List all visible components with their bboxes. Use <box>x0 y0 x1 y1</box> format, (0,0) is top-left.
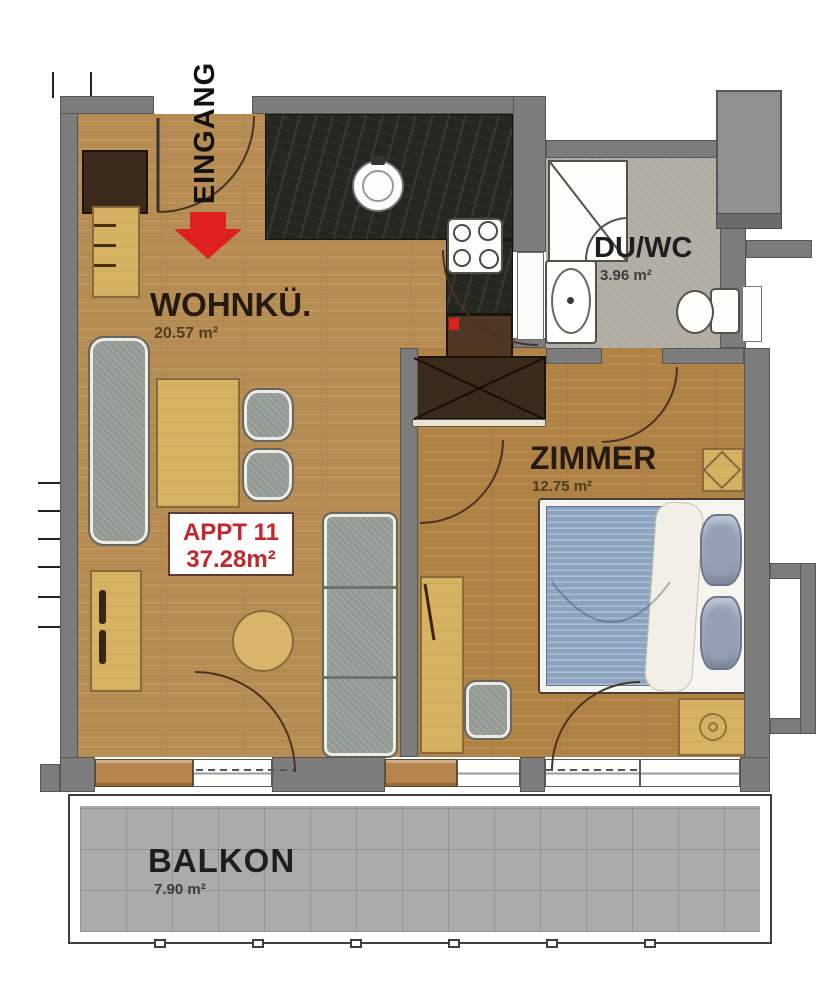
site-tick <box>90 72 92 98</box>
site-tick <box>38 538 62 540</box>
pillar-right <box>800 563 816 734</box>
chair <box>242 388 294 442</box>
wall-bath-bottom-left <box>546 348 602 364</box>
sink-drain-icon <box>567 297 574 304</box>
sideboard <box>90 570 142 692</box>
site-tick <box>38 510 62 512</box>
sideboard-handle <box>99 590 106 624</box>
room-area-zimmer: 12.75 m² <box>532 479 592 494</box>
room-area-duwc: 3.96 m² <box>600 268 652 283</box>
wall-top-main <box>252 96 514 114</box>
window-small <box>457 759 520 787</box>
wall-bottom-3 <box>520 757 545 792</box>
desk-chair <box>464 680 512 740</box>
pillow <box>700 596 742 670</box>
window-living-left <box>95 759 193 787</box>
wall-top-left <box>60 96 154 114</box>
wall-left <box>60 96 78 790</box>
wardrobe <box>412 356 546 420</box>
room-label-balkon: BALKON <box>148 844 295 877</box>
entrance-arrow-icon <box>190 212 226 230</box>
chair <box>242 448 294 502</box>
wall-bedroom-right <box>744 348 770 790</box>
floor-plan: EINGANG WOHNKÜ. 20.57 m² DU/WC 3.96 m² Z… <box>0 0 828 1000</box>
shelf-lines <box>94 244 116 247</box>
railing-post <box>350 939 362 948</box>
railing-post <box>448 939 460 948</box>
bathroom-door-leaf <box>517 252 544 340</box>
wall-bath-top <box>546 140 720 158</box>
dining-table <box>156 378 240 508</box>
room-area-wohnkueche: 20.57 m² <box>154 326 218 342</box>
sideboard-handle <box>99 630 106 664</box>
cooktop <box>447 218 503 274</box>
daybed-divider <box>324 586 396 589</box>
site-tick <box>38 626 62 628</box>
shelf-lines <box>94 224 116 227</box>
railing-post <box>546 939 558 948</box>
site-tick <box>38 482 62 484</box>
daybed-divider <box>324 676 396 679</box>
entrance-arrow-head-icon <box>174 229 242 259</box>
room-label-zimmer: ZIMMER <box>530 442 656 474</box>
site-tick <box>38 566 62 568</box>
window-bedroom <box>640 759 740 787</box>
balcony-door-living <box>193 759 272 787</box>
toilet-bowl <box>676 290 714 334</box>
balcony-door-bedroom <box>545 759 640 787</box>
nightstand-lower <box>678 698 746 756</box>
desk <box>420 576 464 754</box>
railing-post <box>154 939 166 948</box>
window-living-right <box>385 759 457 787</box>
installation-shaft <box>716 90 782 215</box>
site-tick <box>52 72 54 98</box>
site-tick <box>38 596 62 598</box>
room-area-balkon: 7.90 m² <box>154 882 206 897</box>
wall-bottom-2 <box>272 757 385 792</box>
room-label-wohnkueche: WOHNKÜ. <box>150 288 311 321</box>
wall-jut-right-top <box>746 240 812 258</box>
shelf <box>92 206 140 298</box>
wall-living-bedroom <box>400 348 418 757</box>
pillow <box>700 514 742 586</box>
entrance-label: EINGANG <box>187 38 223 228</box>
wall-bottom-1 <box>60 757 95 792</box>
corner-cabinet <box>82 150 148 214</box>
shelf-lines <box>94 264 116 267</box>
round-table <box>232 610 294 672</box>
apartment-area: 37.28m² <box>170 546 292 573</box>
wall-bottom-4 <box>740 757 770 792</box>
nightstand-upper <box>702 448 744 492</box>
apartment-badge: APPT 11 37.28m² <box>168 512 294 576</box>
room-label-duwc: DU/WC <box>594 234 692 263</box>
kitchen-sink-basin <box>362 170 394 202</box>
shaft-base <box>716 213 782 229</box>
faucet-icon <box>371 156 385 165</box>
couch <box>88 336 150 546</box>
wardrobe-rail <box>412 419 546 427</box>
wall-niche <box>742 286 762 342</box>
wall-bath-bottom-right <box>662 348 744 364</box>
oven-knob <box>449 318 459 330</box>
apartment-name: APPT 11 <box>170 519 292 546</box>
railing-post <box>252 939 264 948</box>
toilet-tank <box>710 288 740 334</box>
wall-step-bottom-left <box>40 764 60 792</box>
railing-post <box>644 939 656 948</box>
wall-kitchen-bath-upper <box>513 96 546 252</box>
daybed <box>322 512 398 758</box>
